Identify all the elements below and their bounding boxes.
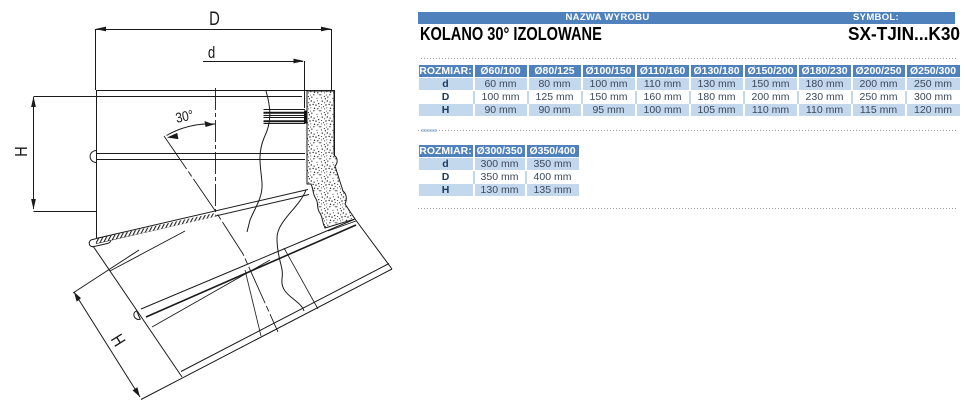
svg-text:d: d <box>208 44 215 63</box>
svg-text:30°: 30° <box>174 106 195 126</box>
svg-text:H: H <box>106 331 128 350</box>
svg-text:H: H <box>12 146 32 156</box>
svg-text:D: D <box>209 8 220 29</box>
